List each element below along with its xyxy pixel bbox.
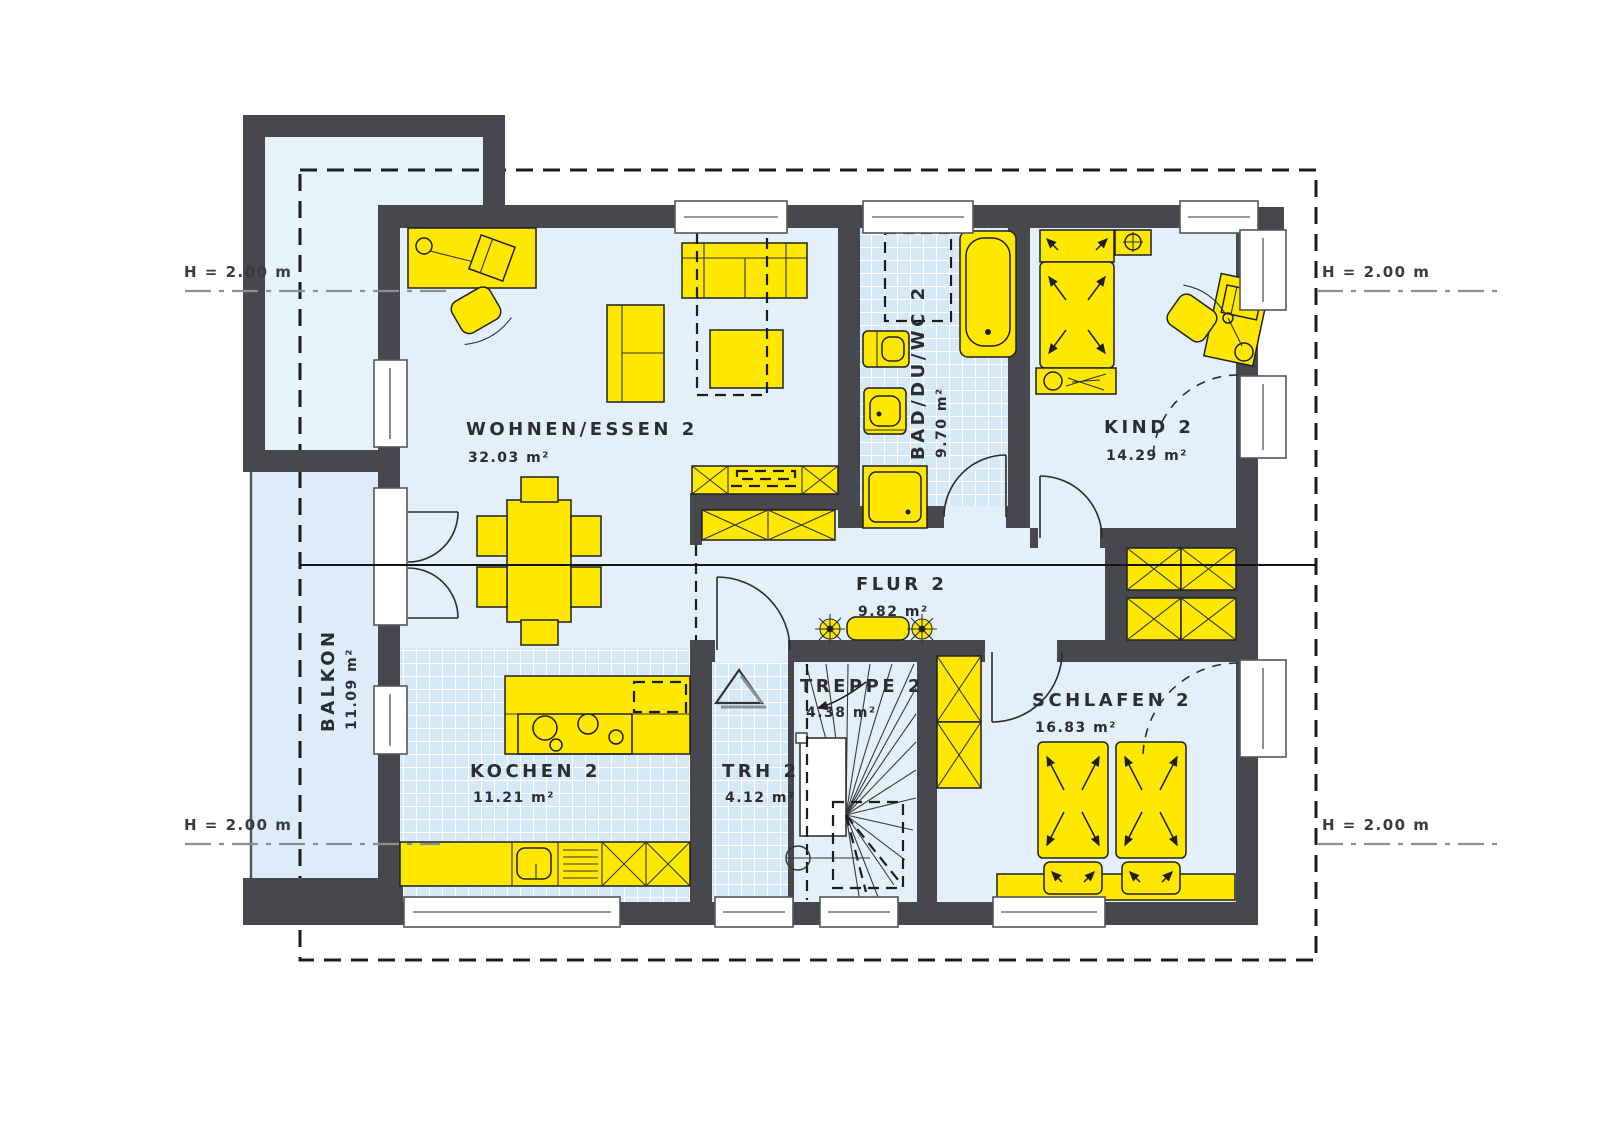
room-label-balkon: BALKON bbox=[318, 628, 339, 732]
height-marker-right-bottom: H = 2.00 m bbox=[1322, 816, 1430, 834]
room-area-bad: 9.70 m² bbox=[934, 284, 950, 458]
room-area-schlafen: 16.83 m² bbox=[1035, 720, 1117, 736]
room-area-treppe: 4.38 m² bbox=[806, 705, 877, 721]
height-marker-right-top: H = 2.00 m bbox=[1322, 263, 1430, 281]
room-label-schlafen: SCHLAFEN 2 bbox=[1032, 690, 1192, 711]
room-label-kind: KIND 2 bbox=[1104, 417, 1194, 438]
room-label-bad-wrap: BAD/DU/WC 2 9.70 m² bbox=[908, 284, 950, 460]
room-label-bad: BAD/DU/WC 2 bbox=[908, 284, 929, 460]
room-label-treppe: TREPPE 2 bbox=[800, 676, 924, 697]
room-label-balkon-wrap: BALKON 11.09 m² bbox=[318, 628, 360, 732]
height-marker-left-bottom: H = 2.00 m bbox=[184, 816, 292, 834]
room-label-trh: TRH 2 bbox=[722, 761, 800, 782]
floor-plan: WOHNEN/ESSEN 2 32.03 m² KIND 2 14.29 m² … bbox=[0, 0, 1600, 1132]
room-area-trh: 4.12 m² bbox=[725, 790, 796, 806]
room-area-kochen: 11.21 m² bbox=[473, 790, 555, 806]
room-label-wohnen: WOHNEN/ESSEN 2 bbox=[466, 419, 698, 440]
room-area-balkon: 11.09 m² bbox=[344, 628, 360, 730]
floorplan-drawing bbox=[0, 0, 1600, 1132]
room-label-flur: FLUR 2 bbox=[856, 574, 947, 595]
room-area-flur: 9.82 m² bbox=[858, 604, 929, 620]
room-area-kind: 14.29 m² bbox=[1106, 448, 1188, 464]
room-label-kochen: KOCHEN 2 bbox=[470, 761, 601, 782]
room-area-wohnen: 32.03 m² bbox=[468, 450, 550, 466]
height-marker-left-top: H = 2.00 m bbox=[184, 263, 292, 281]
